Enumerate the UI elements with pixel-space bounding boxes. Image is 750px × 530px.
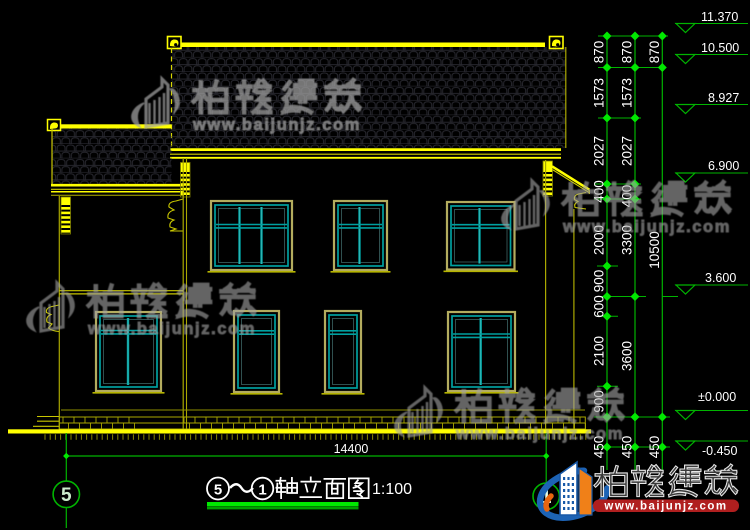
svg-text:600: 600 [592,295,607,318]
svg-text:www.baijunjz.com: www.baijunjz.com [603,501,727,513]
svg-text:900: 900 [592,270,607,293]
svg-text:1:100: 1:100 [372,481,412,498]
svg-text:10.500: 10.500 [701,41,739,55]
svg-text:6.900: 6.900 [708,159,739,173]
svg-text:10500: 10500 [647,231,662,269]
svg-text:11.370: 11.370 [701,10,738,24]
svg-text:1: 1 [258,482,266,499]
svg-text:3.600: 3.600 [705,271,736,285]
svg-text:1573: 1573 [592,78,607,108]
svg-text:5: 5 [61,485,72,506]
svg-text:450: 450 [647,436,662,459]
svg-text:1573: 1573 [620,78,635,108]
svg-text:3600: 3600 [620,341,635,371]
svg-text:14400: 14400 [334,442,369,456]
svg-text:870: 870 [592,41,607,64]
svg-text:±0.000: ±0.000 [698,390,736,404]
svg-text:-0.450: -0.450 [702,444,737,458]
svg-text:2027: 2027 [592,136,607,166]
svg-text:870: 870 [647,41,662,64]
svg-text:5: 5 [214,482,222,499]
svg-text:8.927: 8.927 [708,91,739,105]
svg-text:2100: 2100 [592,336,607,366]
svg-text:2027: 2027 [620,136,635,166]
svg-text:870: 870 [620,41,635,64]
